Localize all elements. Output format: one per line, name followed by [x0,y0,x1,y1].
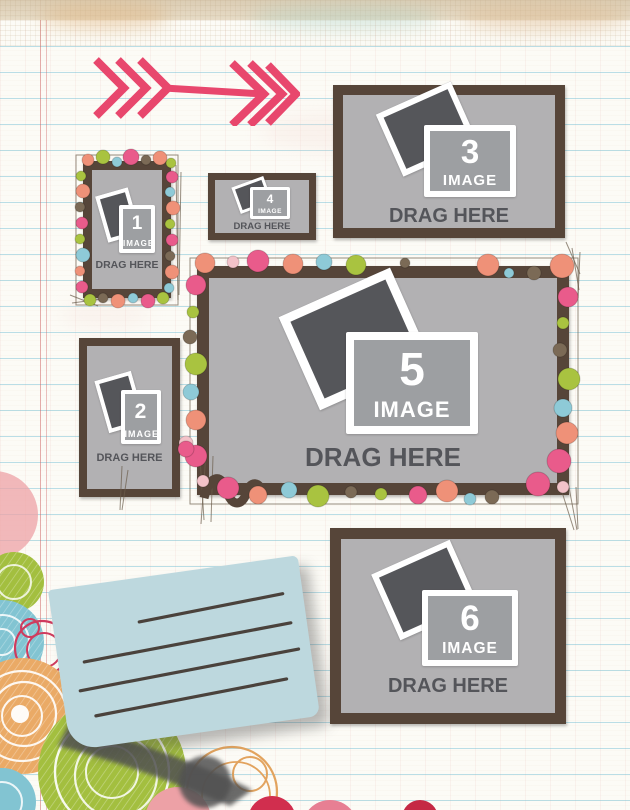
photo-front-icon: 2 IMAGE [121,390,161,444]
slot-number: 2 [125,394,157,429]
image-slot-4[interactable]: 4 IMAGE DRAG HERE [208,173,316,240]
stacked-photos-icon: 3 IMAGE [382,95,516,197]
image-slot-6[interactable]: 6 IMAGE DRAG HERE [330,528,566,724]
scrapbook-template-page: 1 IMAGE DRAG HERE 2 IMAGE DRAG HERE [0,0,630,810]
paint-smudge [60,300,150,330]
image-label: IMAGE [428,640,512,660]
photo-front-icon: 4 IMAGE [250,187,290,219]
photo-front-icon: 3 IMAGE [424,125,516,197]
stacked-photos-icon: 6 IMAGE [378,554,518,666]
image-label: IMAGE [253,208,287,216]
image-dropzone-4[interactable]: 4 IMAGE DRAG HERE [215,180,309,233]
slot-number: 3 [430,131,510,172]
arrow-icon [80,46,300,126]
drag-here-label: DRAG HERE [305,442,461,473]
stacked-photos-icon: 2 IMAGE [99,372,161,444]
image-slot-2[interactable]: 2 IMAGE DRAG HERE [79,338,180,497]
photo-front-icon: 6 IMAGE [422,590,518,666]
drag-here-label: DRAG HERE [388,675,508,698]
image-slot-1[interactable]: 1 IMAGE DRAG HERE [83,161,171,298]
image-label: IMAGE [430,172,510,191]
drag-here-label: DRAG HERE [233,221,290,232]
slot-number: 1 [123,209,151,239]
image-dropzone-1[interactable]: 1 IMAGE DRAG HERE [92,170,162,289]
slot-number: 5 [354,340,470,397]
image-label: IMAGE [354,397,470,426]
stacked-photos-icon: 1 IMAGE [99,189,155,253]
image-slot-3[interactable]: 3 IMAGE DRAG HERE [333,85,565,238]
slot-number: 6 [428,596,512,640]
drag-here-label: DRAG HERE [389,205,509,228]
notebook-margin-line [40,0,47,810]
stacked-photos-icon: 4 IMAGE [234,181,290,219]
drag-here-label: DRAG HERE [95,259,158,271]
image-dropzone-5[interactable]: 5 IMAGE DRAG HERE [209,278,557,483]
image-dropzone-3[interactable]: 3 IMAGE DRAG HERE [343,95,555,228]
paint-smudge [40,2,170,30]
image-label: IMAGE [123,239,151,249]
image-slot-5[interactable]: 5 IMAGE DRAG HERE [197,266,569,495]
drag-here-label: DRAG HERE [96,452,162,464]
photo-front-icon: 1 IMAGE [119,205,155,253]
paint-smudge [460,2,630,32]
stacked-photos-icon: 5 IMAGE [288,288,478,434]
image-label: IMAGE [125,429,157,440]
photo-front-icon: 5 IMAGE [346,332,478,434]
paint-smudge [250,6,440,30]
image-dropzone-6[interactable]: 6 IMAGE DRAG HERE [341,539,555,713]
image-dropzone-2[interactable]: 2 IMAGE DRAG HERE [87,346,172,489]
slot-number: 4 [253,190,287,208]
